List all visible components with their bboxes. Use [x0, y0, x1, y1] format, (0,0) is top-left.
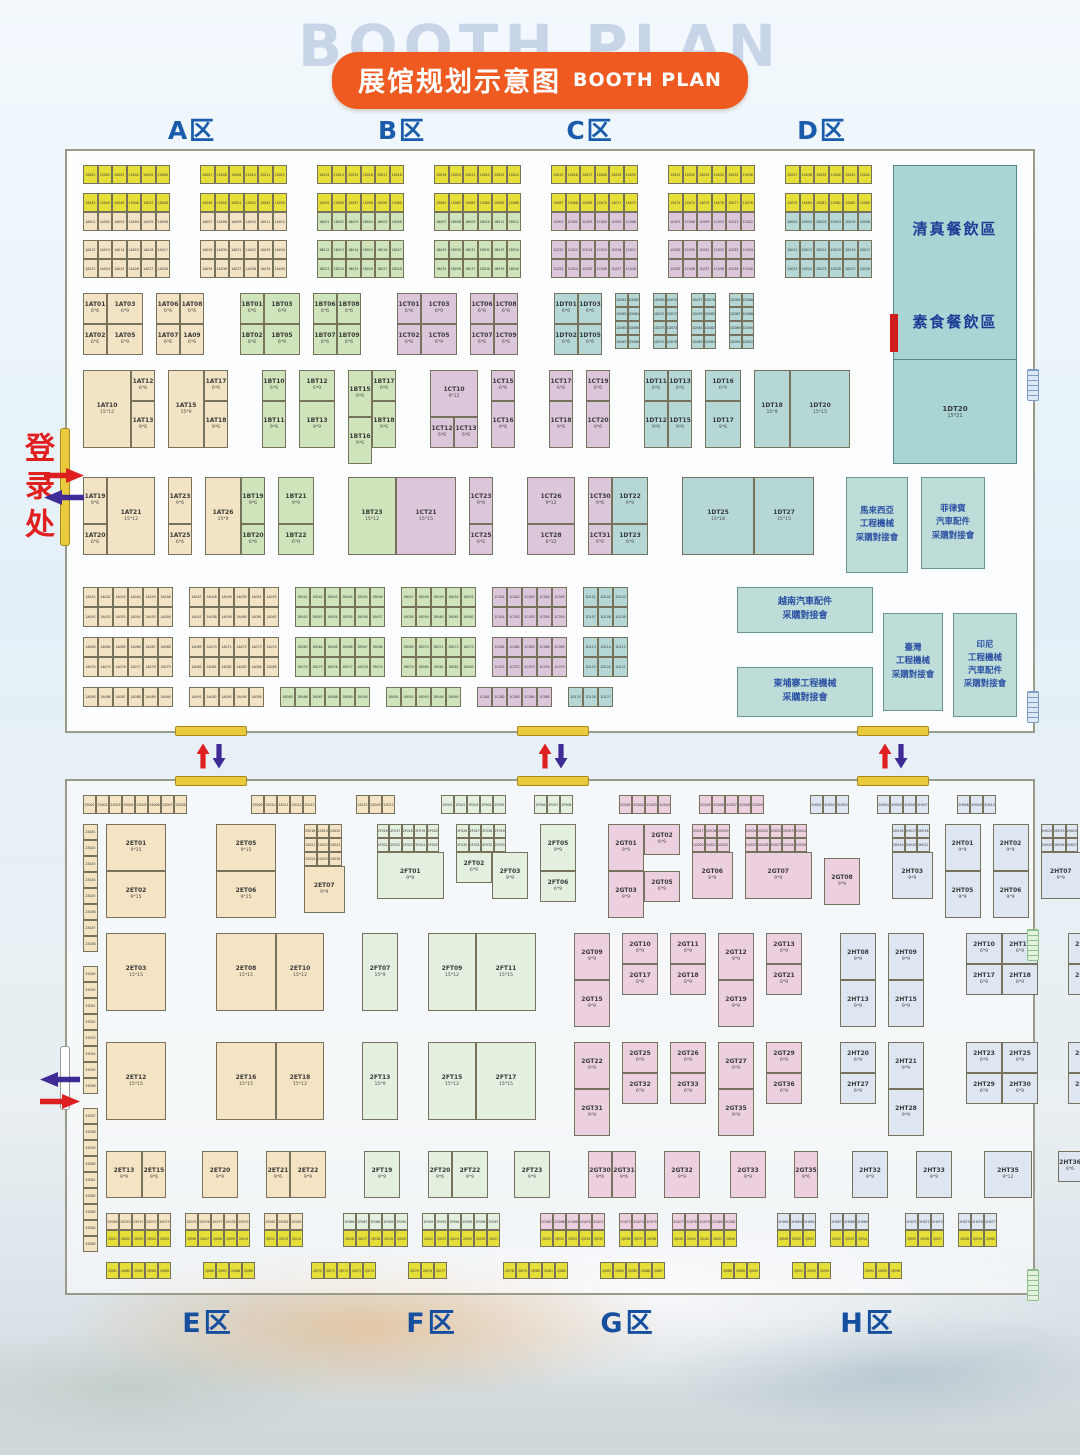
section-label-h: H区	[840, 1301, 896, 1340]
strip-cell: 2F087	[356, 1213, 369, 1230]
strip-cell: 1A076	[113, 657, 128, 677]
booth-size: 9*9	[554, 848, 562, 853]
grid-cell: 1D078	[704, 293, 717, 307]
strip-cell: 1B077	[340, 657, 355, 677]
meeting-col-2: 臺灣工程機械采購對接會	[883, 613, 943, 717]
strip-cell: 1A057	[189, 607, 204, 627]
booth-column: 2GT019*92GT026*92GT039*92GT056*9	[608, 824, 680, 918]
strip-cell: 1D101	[583, 587, 598, 607]
strip-cell: 1B059	[416, 607, 431, 627]
strip-cell: 2E081	[264, 1213, 277, 1230]
booth-column: 1AT199*61AT206*6	[83, 477, 107, 555]
booth: 1BT119*6	[262, 401, 286, 448]
booth: 1CT286*12	[527, 524, 575, 555]
strip-cell: 1D002	[800, 212, 815, 231]
strip-row: 2J0162J0172J0182J0192J020	[343, 1230, 408, 1247]
booth-strip: 1S0131S0141S0151S0161S0171S018	[317, 165, 404, 184]
booth-strip: 1D1011D1021D1031D1071D1081D109	[583, 587, 628, 627]
booth-size: 15*12	[445, 973, 459, 978]
booth-size: 6*6	[91, 309, 99, 314]
booth: 2FT1515*12	[428, 1042, 476, 1120]
booth-strip: 1S0311S0321S0331S0341S0351S036	[668, 165, 755, 184]
strip-cell: 2S053	[83, 1030, 98, 1046]
strip-cell: 2J055	[905, 1230, 918, 1247]
strip-cell: 2S065	[83, 1236, 98, 1252]
strip-cell: 1S007	[200, 165, 215, 184]
strip-cell: 1A052	[264, 587, 279, 607]
booth-column: 1DT116*61DT129*6	[644, 370, 668, 448]
strip-cell: 1A016	[141, 240, 156, 259]
strip-cell: 1A015	[127, 240, 142, 259]
strip-cell: 1B003	[346, 212, 361, 231]
booth-column: 2H0222H0232H0242H0252H0262H0272HT079*9	[1041, 824, 1080, 899]
booth: 1BT189*6	[372, 401, 396, 448]
booth-column: 1AT1015*12	[83, 370, 131, 448]
booth-group: 1DT166*91DT179*6	[705, 370, 741, 448]
strip-cell: 1C007	[668, 212, 683, 231]
booth-size: 6*6	[405, 340, 413, 345]
grid-cell: 2S023	[329, 838, 342, 852]
strip-cell: 1B055	[340, 607, 355, 627]
strip-cell: 1B009	[463, 212, 478, 231]
strip-cell: 2S044	[83, 872, 98, 888]
strip-cell: 2G077	[672, 1213, 685, 1230]
exit-bar	[517, 776, 589, 786]
booth-group: 1BT219*91BT226*9	[278, 477, 314, 555]
strip-cell: 1A066	[128, 637, 143, 657]
strip-cell: 1B060	[431, 607, 446, 627]
strip-row: 1B0351B0361B0371B0381B0391B040	[434, 259, 521, 278]
strip-cell: 1B049	[431, 587, 446, 607]
booth-group: 2GT329*9	[664, 1151, 700, 1198]
booth: 2GT256*9	[622, 1042, 658, 1073]
left-strip-segment: 2S0572S0582S0592S0602S0612S0622S0632S064…	[83, 1108, 98, 1252]
strip-cell: 2S013	[303, 795, 316, 814]
strip-cell: 2H006	[903, 795, 916, 814]
strip-cell: 2G002	[632, 795, 645, 814]
strip-cell: 1B032	[478, 240, 493, 259]
strip-cell: 2S063	[83, 1204, 98, 1220]
booth: 2HT126*9	[1068, 933, 1080, 964]
booth: 2FT059*9	[540, 824, 576, 871]
strip-cell: 1A031	[229, 240, 244, 259]
strip-cell: 1S079	[785, 193, 800, 212]
strip-cell: 2S046	[83, 904, 98, 920]
strip-cell: 1A058	[204, 607, 219, 627]
booth-group: 2GT136*92GT216*9	[766, 933, 802, 995]
booth: 1AT256*6	[168, 524, 192, 555]
strip-row: 2J0942J0952J096	[863, 1262, 902, 1279]
booth-strip: 1A0411A0421A0431A0441A0451A0461A0511A052…	[83, 587, 173, 627]
booth: 1BT206*6	[241, 524, 265, 555]
strip-row: 1B0791B0801B0811B0821B083	[401, 657, 476, 677]
exit-arrows	[539, 744, 568, 769]
strip-cell: 1S013	[317, 165, 332, 184]
booth-size: 9*6	[139, 425, 147, 430]
strip-cell: 1B050	[446, 587, 461, 607]
strip-cell: 2J063	[132, 1262, 145, 1279]
booth-size: 6*9	[1016, 1089, 1024, 1094]
booth-column: 2HT099*92HT159*9	[888, 933, 924, 1027]
strip-cell: 1D016	[843, 240, 858, 259]
strip-cell: 1A082	[219, 657, 234, 677]
strip-row: 2J0662J0672J0682J069	[203, 1262, 255, 1279]
booth-group: 2GT279*92GT359*9	[718, 1042, 754, 1136]
strip-cell: 1A043	[113, 587, 128, 607]
strip-cell: 1D015	[829, 240, 844, 259]
booth: 1BT199*6	[241, 477, 265, 524]
strip-cell: 1C044	[537, 587, 552, 607]
strip-cell: 2S009	[251, 795, 264, 814]
strip-cell: 1C039	[726, 259, 741, 278]
band: 2ET1215*152ET1615*152ET1815*122FT1315*92…	[106, 1042, 1080, 1136]
strip-cell: 1S062	[449, 193, 464, 212]
strip-cell: 1D103	[613, 587, 628, 607]
strip-row: 1A0571A0581A0591A0601A0611A062	[189, 607, 279, 627]
booth-group: 2FT1315*9	[362, 1042, 398, 1120]
strip-cell: 1B074	[295, 657, 310, 677]
grid-row: 2H0162H0172H018	[892, 824, 933, 838]
booth: 1AT189*6	[204, 401, 228, 448]
strip-cell: 1A074	[264, 637, 279, 657]
strip-cell: 1A080	[189, 657, 204, 677]
booth: 1DT179*6	[705, 401, 741, 448]
strip-cell: 1C014	[580, 240, 595, 259]
booth-size: 6*6	[405, 309, 413, 314]
booth-size: 9*9	[744, 1175, 752, 1180]
booth-size: 6*9	[684, 949, 692, 954]
grid-cell: 2F031	[469, 838, 482, 852]
booth-size: 9*6	[802, 1175, 810, 1180]
strip-cell: 1B070	[416, 637, 431, 657]
strip-cell: 1S055	[317, 193, 332, 212]
booth-strip: 1B0291B0301B0311B0321B0331B0341B0351B036…	[434, 240, 521, 278]
strip-row: 2J0122J0132J014	[264, 1230, 303, 1247]
booth-column: 1AT176*61AT189*6	[204, 370, 228, 448]
strip-cell: 2J023	[435, 1230, 448, 1247]
strip-cell: 1A002	[98, 212, 113, 231]
strip-row: 1S0551S0561S0571S0581S0591S060	[317, 193, 404, 212]
strip-row: 1A0231A0241A0251A0261A0271A028	[83, 259, 170, 278]
booth: 2GT186*9	[670, 964, 706, 995]
grid-cell: 2F023	[402, 838, 415, 852]
strip-cell: 1B024	[332, 259, 347, 278]
grid-cell: 2S024	[304, 852, 317, 866]
booth-column: 2FT1115*15	[476, 933, 536, 1011]
booth: 2HT359*12	[984, 1151, 1032, 1198]
booth: 1CT2115*15	[396, 477, 456, 555]
booth-column: 1CT2115*15	[396, 477, 456, 555]
strip-row: 1D1251D1261D127	[568, 687, 613, 707]
strip-row: 1C0121C0131C0141C0151C0161C017	[551, 240, 638, 259]
strip-cell: 1B092	[401, 687, 416, 707]
grid-cell: 1D084	[704, 335, 717, 349]
booth-size: 6*9	[636, 949, 644, 954]
exit-bar	[857, 776, 929, 786]
strip-cell: 2E076	[198, 1213, 211, 1230]
strip-cell: 2J043	[711, 1230, 724, 1247]
strip-cell: 1B078	[355, 657, 370, 677]
strip-cell: 2S004	[122, 795, 135, 814]
grid-cell: 2G029	[795, 838, 808, 852]
strip-row: 1B0011B0021B0031B0041B0051B006	[317, 212, 404, 231]
strip-cell: 1D119	[583, 657, 598, 677]
strip-cell: 2J075	[408, 1262, 421, 1279]
booth: 2ET209*9	[202, 1151, 238, 1198]
booth-id: 2ET10	[290, 966, 311, 973]
strip-cell: 1B005	[375, 212, 390, 231]
booth: 1AT056*9	[107, 324, 143, 355]
booth-size: 9*15	[240, 848, 251, 853]
strip-cell: 2S050	[83, 982, 98, 998]
strip-row: 2J0492J0502J051	[777, 1230, 816, 1247]
strip-cell: 2J054	[856, 1230, 869, 1247]
strip-row: 2F0862F0872F0882F0892F090	[343, 1213, 408, 1230]
booth-column: 2G0172G0182G0192G0202G0212G0222GT069*9	[692, 824, 733, 899]
strip-cell: 1S015	[346, 165, 361, 184]
booth-size: 9*9	[466, 1175, 474, 1180]
strip-row: 1C0511C0521C0531C0541C055	[492, 607, 567, 627]
grid-row: 1D0671D068	[615, 335, 640, 349]
strip-row: 1S0071S0081S0091S0101S0111S012	[200, 165, 287, 184]
booth: 1BT226*9	[278, 524, 314, 555]
strip-cell: 1A062	[264, 607, 279, 627]
band: 2S0012S0022S0032S0042S0052S0062S0072S008…	[83, 795, 1017, 814]
strip-cell: 1B043	[325, 587, 340, 607]
booth-column: 2FT059*92FT066*9	[540, 824, 576, 902]
booth-strip: 2F0922F0932F0942F0952F0962F0972J0222J023…	[422, 1213, 500, 1247]
booth-size: 6*6	[321, 340, 329, 345]
booth-group: 2GT089*9	[824, 824, 860, 905]
booth: 2HT059*9	[945, 871, 981, 918]
strip-row: 2J0522J0532J054	[830, 1230, 869, 1247]
booth-group: 2ET059*152ET069*15	[216, 824, 276, 918]
booth-size: 9*9	[902, 1004, 910, 1009]
strip-cell: 2J036	[619, 1230, 632, 1247]
strip-cell: 1A056	[158, 607, 173, 627]
booth-size: 6*9	[684, 1058, 692, 1063]
booth-size: 9*9	[732, 1004, 740, 1009]
hall-1-top-bands: 1S0011S0021S0031S0041S0051S0061S0071S008…	[83, 165, 872, 464]
booth-strip: 2J0702J0712J0722J0732J074	[311, 1262, 376, 1279]
strip-row: 2H0712H0722H073	[905, 1213, 944, 1230]
strip-cell: 2J062	[119, 1262, 132, 1279]
booth: 2ET079*9	[304, 866, 345, 913]
strip-cell: 2F089	[382, 1213, 395, 1230]
booth-column: 1DT1815*9	[754, 370, 790, 448]
booth-size: 6*9	[470, 868, 478, 873]
booth-strip: 1A0291A0301A0311A0321A0331A0341A0351A036…	[200, 240, 287, 278]
booth-id: 2FT17	[496, 1075, 517, 1082]
strip-cell: 1S040	[829, 165, 844, 184]
booth-column: 1BT176*61BT189*6	[372, 370, 396, 448]
strip-cell: 1S025	[551, 165, 566, 184]
booth-strip: 1S0491S0501S0511S0521S0531S0541A0071A008…	[200, 193, 287, 231]
booth: 2GT116*9	[670, 933, 706, 964]
meeting-area-label: 采購對接會	[932, 531, 975, 542]
booth-column: 2S0182S0192S0202S0212S0222S0232S0242S025…	[304, 824, 345, 913]
grid-row: 2G0202G0212G022	[692, 838, 733, 852]
strip-cell: 1C052	[507, 607, 522, 627]
booth-size: 15*12	[445, 1082, 459, 1087]
strip-cell: 1B046	[370, 587, 385, 607]
booth-size: 9*9	[866, 1175, 874, 1180]
booth-group: 2ET0815*152ET1015*12	[216, 933, 324, 1011]
grid-cell: 1D086	[742, 293, 755, 307]
strip-row: 2J0782J0792J0802J0812J082	[503, 1262, 568, 1279]
strip-cell: 1B095	[446, 687, 461, 707]
booth-column: 2GT339*9	[730, 1151, 766, 1198]
strip-cell: 1B025	[346, 259, 361, 278]
booth-column: 2ET1615*15	[216, 1042, 276, 1120]
halal-dining-label: 清真餐飲區	[912, 218, 997, 239]
strip-cell: 1A051	[249, 587, 264, 607]
strip-row: 1A0911A0921A0931A0941A095	[189, 687, 264, 707]
booth-id: 1AT26	[213, 510, 234, 517]
strip-cell: 1S043	[83, 193, 98, 212]
booth-size: 6*9	[658, 887, 666, 892]
booth-size: 15*12	[293, 973, 307, 978]
booth-size: 6*9	[780, 1089, 788, 1094]
booth: 1DT136*6	[668, 370, 692, 401]
strip-cell: 1S002	[98, 165, 113, 184]
strip-cell: 2F097	[487, 1213, 500, 1230]
strip-row: 1B0231B0241B0251B0261B0271B028	[317, 259, 404, 278]
booth: 1CT309*6	[588, 477, 612, 524]
grid-row: 1D0691D070	[653, 293, 678, 307]
strip-cell: 2H071	[905, 1213, 918, 1230]
strip-row: 2S0092S0102S0112S0122S013	[251, 795, 316, 814]
strip-cell: 1A084	[249, 657, 264, 677]
strip-cell: 1S014	[332, 165, 347, 184]
strip-cell: 1S074	[683, 193, 698, 212]
strip-cell: 1D001	[785, 212, 800, 231]
strip-cell: 2J026	[474, 1230, 487, 1247]
booth: 1CT156*6	[491, 370, 515, 401]
booth-size: 6*9	[854, 1058, 862, 1063]
booth-size: 6*9	[658, 840, 666, 845]
booth-size: 9*6	[620, 1175, 628, 1180]
strip-row: 1S0131S0141S0151S0161S0171S018	[317, 165, 404, 184]
strip-cell: 1B066	[340, 637, 355, 657]
strip-cell: 1D025	[814, 259, 829, 278]
grid-row: 1D0731D074	[653, 321, 678, 335]
grid-cell: 2H022	[1041, 824, 1054, 838]
booth-id: 1AT15	[176, 403, 197, 410]
booth-column: 1DT2715*15	[754, 477, 814, 555]
booth-group: 2HT359*12	[984, 1151, 1032, 1198]
booth-strip: 1B0631B0641B0651B0661B0671B0681B0741B075…	[295, 637, 385, 677]
booth-size: 15*12	[365, 517, 379, 522]
strip-row: 1S0431S0441S0451S0461S0471S048	[83, 193, 170, 212]
booth-column: 1CT036*91CT056*9	[421, 293, 457, 355]
strip-cell: 1A049	[219, 587, 234, 607]
booth-strip: 2H0672H0682H0692J0522J0532J054	[830, 1213, 869, 1247]
booth-column: 1AT036*91AT056*9	[107, 293, 143, 355]
strip-cell: 2F005	[493, 795, 506, 814]
strip-cell: 1S030	[624, 165, 639, 184]
strip-cell: 1B076	[325, 657, 340, 677]
booth-group: 2HT329*9	[852, 1151, 888, 1198]
strip-cell: 1C053	[522, 607, 537, 627]
strip-cell: 1A067	[143, 637, 158, 657]
booth: 1BT219*9	[278, 477, 314, 524]
booth-group: 2F0162F0172F0182F0192F0202F0212F0222F023…	[377, 824, 445, 899]
booth: 2FT0715*9	[362, 933, 398, 1011]
grid-cell: 2F032	[481, 838, 494, 852]
strip-cell: 1B065	[325, 637, 340, 657]
booth-size: 6*9	[435, 340, 443, 345]
grid-cell: 2F029	[494, 824, 507, 838]
strip-cell: 1S003	[112, 165, 127, 184]
strip-cell: 2J033	[566, 1230, 579, 1247]
grid-cell: 2F025	[427, 838, 440, 852]
strip-cell: 1A055	[143, 607, 158, 627]
strip-cell: 2S017	[382, 795, 395, 814]
strip-cell: 1C055	[552, 607, 567, 627]
strip-row: 2J0312J0322J0332J0342J035	[540, 1230, 605, 1247]
booth-size: 9*15	[130, 895, 141, 900]
booth-group: 2ET0315*15	[106, 933, 166, 1011]
booth: 1CT109*12	[430, 370, 478, 417]
booth-column: 1BT036*91BT056*9	[264, 293, 300, 355]
strip-cell: 1S052	[244, 193, 259, 212]
booth: 2HT106*9	[966, 933, 1002, 964]
section-label-f: F区	[406, 1301, 457, 1340]
strip-cell: 2S049	[83, 966, 98, 982]
strip-cell: 1A090	[158, 687, 173, 707]
booth-id: 1DT18	[761, 403, 783, 410]
booth-size: 6*9	[780, 980, 788, 985]
booth: 2HT329*9	[852, 1151, 888, 1198]
strip-cell: 1B081	[431, 657, 446, 677]
strip-cell: 1A012	[83, 240, 98, 259]
booth: 2HT266*9	[1068, 1042, 1080, 1073]
strip-cell: 2S002	[96, 795, 109, 814]
booth-size: 15*15	[777, 517, 791, 522]
strip-cell: 2J004	[145, 1230, 158, 1247]
strip-cell: 2H007	[916, 795, 929, 814]
strip-cell: 2F003	[467, 795, 480, 814]
booth-column: 2GT129*92GT199*9	[718, 933, 754, 1027]
booth: 1CT256*6	[469, 524, 493, 555]
section-label-c: C区	[566, 111, 613, 147]
booth-group: 2GT116*92GT186*9	[670, 933, 706, 995]
strip-row: 2G0012G0022G0032G004	[619, 795, 671, 814]
strip-cell: 1B023	[317, 259, 332, 278]
strip-cell: 1A068	[158, 637, 173, 657]
booth: 2GT106*9	[622, 933, 658, 964]
booth-group: 2GT359*6	[794, 1151, 818, 1198]
strip-cell: 2F008	[560, 795, 573, 814]
booth: 2ET1815*12	[276, 1042, 324, 1120]
strip-cell: 1C082	[492, 687, 507, 707]
strip-cell: 1A047	[189, 587, 204, 607]
hall-2-body: 2S0412S0422S0432S0442S0452S0462S0472S048…	[83, 824, 1017, 1279]
strip-cell: 1S059	[375, 193, 390, 212]
strip-cell: 1S057	[346, 193, 361, 212]
meeting-area-block: 菲律賓汽車配件采購對接會	[921, 477, 985, 569]
booth: 2FT0915*12	[428, 933, 476, 1011]
strip-row: 1S0371S0381S0391S0401S0411S042	[785, 165, 872, 184]
strip-cell: 2J088	[721, 1262, 734, 1279]
meeting-area-label: 汽車配件	[936, 517, 970, 528]
booth: 1DT026*6	[554, 324, 578, 355]
strip-cell: 1C040	[741, 259, 756, 278]
booth: 1AT036*9	[107, 293, 143, 324]
grid-row: 1D0631D064	[615, 307, 640, 321]
booth-strip: 2G0052G0062G0072G0082G009	[699, 795, 764, 814]
